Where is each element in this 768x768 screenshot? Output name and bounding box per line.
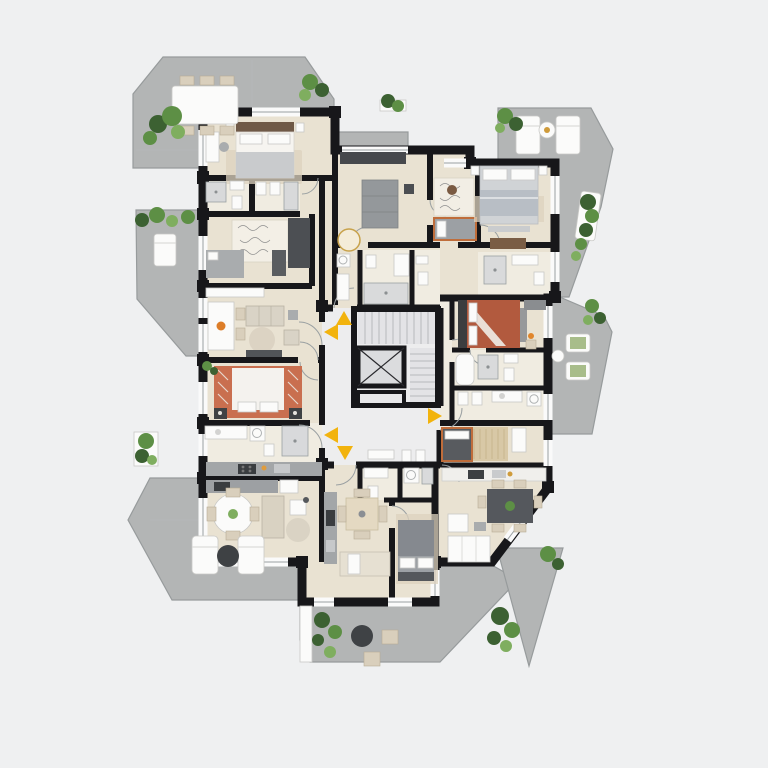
tv-wall-unit [340, 152, 406, 164]
window [199, 298, 208, 318]
cabinet [272, 250, 286, 276]
window [544, 440, 553, 466]
window [544, 394, 553, 420]
armchair [290, 500, 306, 515]
side-table [404, 184, 414, 194]
kitchen-counter [206, 480, 298, 493]
window [551, 176, 560, 214]
armchair [284, 330, 299, 345]
window [252, 108, 300, 117]
window [444, 159, 466, 168]
window [544, 306, 553, 338]
floor-plan [0, 0, 768, 768]
service-shaft [358, 392, 404, 405]
round-rug [286, 518, 310, 542]
double-bed-dark [396, 514, 438, 584]
kitchen-counter [324, 492, 337, 564]
single-bed [442, 428, 472, 461]
window [388, 598, 412, 607]
window [199, 324, 208, 352]
double-bed [236, 122, 294, 178]
round-table-gold [338, 229, 360, 251]
nightstand [296, 123, 304, 132]
wardrobe [288, 218, 310, 268]
nightstand [471, 166, 479, 175]
chair [219, 142, 229, 152]
sofa [340, 552, 390, 576]
sideboard [206, 288, 264, 297]
kitchen-counter [206, 462, 322, 476]
desk [512, 428, 526, 452]
double-bed-red [214, 366, 302, 419]
floor-plan-canvas [0, 0, 768, 768]
stool [447, 185, 457, 195]
window [199, 382, 208, 414]
terrace-dining-set [172, 76, 238, 135]
sofa [246, 306, 284, 326]
floor-lamp [303, 497, 309, 503]
nightstand [526, 340, 536, 349]
desk [206, 132, 219, 162]
sofa [262, 496, 284, 538]
window [551, 252, 560, 282]
window [314, 598, 334, 607]
pillow [208, 252, 218, 260]
dresser [490, 238, 526, 249]
nightstand [539, 166, 547, 175]
tv-bench [246, 350, 282, 357]
side-table [288, 310, 298, 320]
single-bed [434, 218, 476, 240]
plant [134, 432, 158, 466]
patterned-rug [434, 178, 474, 216]
stair-flight-upper [358, 312, 436, 344]
sink-counter [368, 450, 394, 459]
lounger [154, 234, 176, 266]
dresser [524, 300, 546, 310]
toilet [416, 450, 425, 463]
lamp [528, 333, 534, 339]
toilet [402, 450, 411, 463]
double-bed-gray [480, 166, 538, 232]
double-bed-terracotta [458, 300, 527, 348]
kitchen-counter [442, 468, 546, 481]
sofa [362, 180, 398, 228]
round-rug [249, 327, 275, 353]
